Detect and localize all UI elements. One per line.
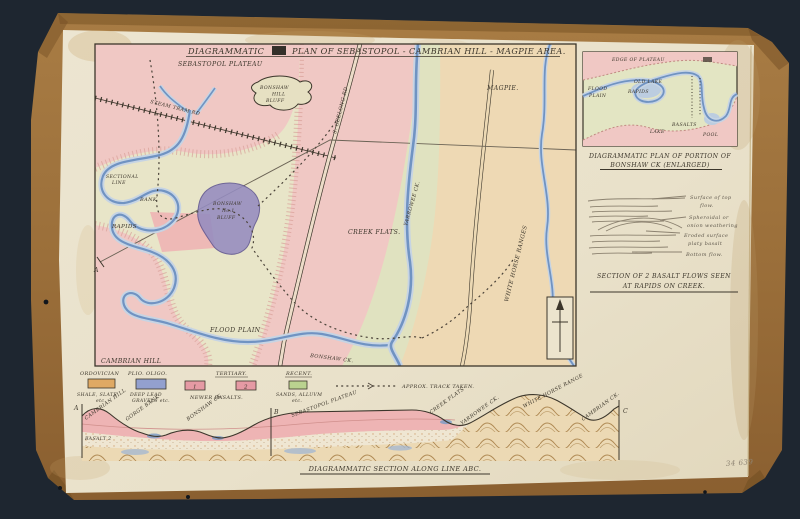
sketch-label-3b: platy basalt (688, 241, 723, 247)
label-bonshaw-hill-3: BLUFF (265, 98, 285, 104)
inset-label-flood-2: PLAIN (588, 93, 607, 99)
main-map: DIAGRAMMATIC PLAN OF SEBASTOPOL - CAMBRI… (93, 44, 576, 366)
map-title: DIAGRAMMATIC PLAN OF SEBASTOPOL - CAMBRI… (186, 46, 566, 57)
label-cambrian-hill: CAMBRIAN HILL (101, 358, 161, 365)
label-magpie: MAGPIE. (486, 85, 519, 92)
legend-swatch-1 (136, 379, 166, 389)
label-bluff1-2: No.1 (221, 208, 235, 214)
folder-hole (44, 300, 49, 305)
legend-flow-b: 2 (243, 385, 248, 391)
map-title-word: DIAGRAMMATIC (187, 46, 265, 56)
sketch-label-2b: onion weathering (687, 223, 738, 229)
sketch-label-4: Bottom flow. (685, 252, 723, 258)
label-creek-flats: CREEK FLATS. (348, 229, 400, 236)
sketch-label-2a: Spheroidal or (689, 215, 729, 221)
cs-a: A (73, 405, 79, 412)
cs-c: C (623, 408, 628, 415)
label-sectional-1: SECTIONAL (106, 174, 139, 180)
legend-era-2: TERTIARY. (216, 371, 247, 377)
legend-desc-3b: etc. (292, 398, 302, 404)
map-title-rest: PLAN OF SEBASTOPOL - CAMBRIAN HILL - MAG… (291, 46, 566, 56)
legend-flow-a: 1 (193, 385, 197, 391)
inset-label-rapids: RAPIDS (627, 89, 649, 95)
label-bluff1-1: BONSHAW (212, 201, 243, 207)
inset-label-old-lake: OLD LAKE (634, 79, 663, 85)
section-lead-water (284, 448, 316, 454)
scene-svg: DIAGRAMMATIC PLAN OF SEBASTOPOL - CAMBRI… (0, 0, 800, 519)
label-bank: BANK (139, 197, 157, 203)
folder-hole (703, 490, 707, 494)
inset-caption-1: DIAGRAMMATIC PLAN OF PORTION OF (588, 153, 731, 160)
sketch-caption-1: SECTION OF 2 BASALT FLOWS SEEN (597, 273, 731, 280)
main-map-terrain (95, 44, 576, 366)
legend-era-0: ORDOVICIAN (80, 371, 119, 377)
inset-label-lake: LAKE (649, 129, 665, 135)
label-sebastopol-plateau: SEBASTOPOL PLATEAU (178, 61, 263, 68)
label-point-a: A (93, 267, 99, 274)
sketch-caption-2: AT RAPIDS ON CREEK. (622, 283, 705, 290)
inset-dark-mark (703, 57, 712, 62)
label-bonshaw-hill-1: BONSHAW (259, 85, 290, 91)
inset-label-basalts: BASALTS (671, 122, 697, 128)
sketch-label-3a: Eroded surface (683, 233, 728, 239)
section-lead-water (121, 449, 149, 455)
cs-caption: DIAGRAMMATIC SECTION ALONG LINE ABC. (308, 465, 482, 473)
title-scratched-word (272, 46, 286, 55)
legend-swatch-0 (88, 379, 115, 388)
section-lead-water (388, 445, 412, 450)
folder-hole (186, 495, 190, 499)
label-rapids: RAPIDS (111, 224, 137, 230)
legend-era-3: RECENT. (285, 371, 312, 377)
photo-of-map: DIAGRAMMATIC PLAN OF SEBASTOPOL - CAMBRI… (0, 0, 800, 519)
sketch-label-1b: flow. (699, 203, 714, 209)
folder-hole (58, 486, 62, 490)
inset-label-pool: POOL (702, 132, 718, 138)
inset-caption-2: BONSHAW CK (ENLARGED) (609, 162, 710, 169)
north-arrow (547, 297, 573, 359)
inset-label-flood-1: FLOOD (587, 86, 607, 92)
cross-section-caption: DIAGRAMMATIC SECTION ALONG LINE ABC. (300, 465, 490, 474)
legend-era-1: PLIO. OLIGO. (127, 371, 167, 377)
sketch-label-1a: Surface of top (690, 195, 732, 201)
accession-note: 34 639 (726, 457, 754, 468)
inset-label-edge: EDGE OF PLATEAU (611, 57, 665, 63)
cs-b: B (273, 409, 279, 416)
cs-basalt2: BASALT 2 (84, 436, 111, 442)
legend-swatch-3 (289, 381, 307, 389)
legend-desc-3a: SANDS, ALLUVM (276, 392, 322, 398)
label-flood-plain: FLOOD PLAIN (209, 327, 261, 334)
label-bonshaw-hill-2: HILL (271, 92, 286, 98)
label-bluff1-3: BLUFF (216, 215, 236, 221)
label-sectional-2: LINE (111, 180, 126, 186)
